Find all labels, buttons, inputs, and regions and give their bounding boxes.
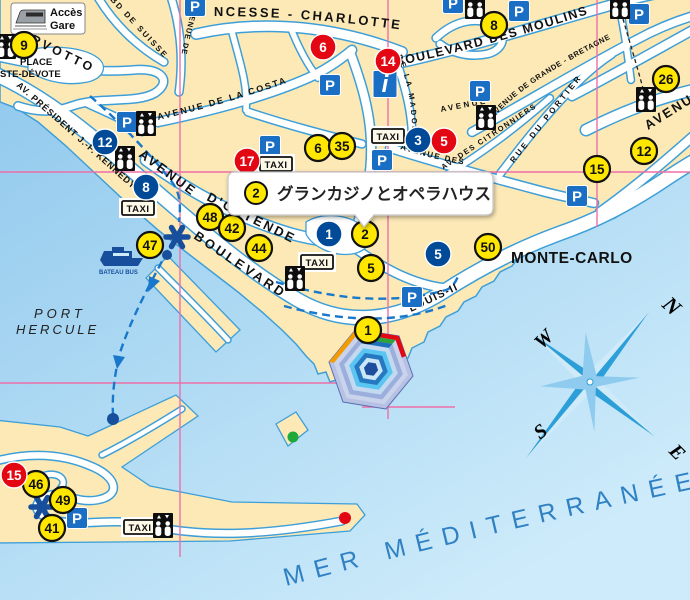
marker-yellow-42[interactable]: 42 — [219, 215, 245, 241]
marker-red-5[interactable]: 5 — [431, 128, 457, 154]
svg-text:P: P — [265, 139, 275, 156]
marker-yellow-49[interactable]: 49 — [50, 487, 76, 513]
svg-text:P: P — [325, 78, 335, 95]
svg-text:6: 6 — [319, 40, 327, 55]
taxi-sign[interactable]: TAXI — [121, 200, 156, 217]
marker-yellow-5[interactable]: 5 — [358, 255, 384, 281]
marker-yellow-26[interactable]: 26 — [653, 66, 679, 92]
elevator-icon[interactable] — [465, 0, 485, 19]
svg-text:15: 15 — [6, 468, 22, 483]
svg-text:49: 49 — [55, 493, 70, 508]
parking-icon[interactable]: P — [320, 75, 341, 96]
parking-icon[interactable]: P — [629, 4, 650, 25]
svg-text:TAXI: TAXI — [306, 258, 329, 269]
marker-yellow-15[interactable]: 15 — [584, 156, 610, 182]
svg-text:42: 42 — [224, 221, 239, 236]
map-canvas[interactable]: NCESSE - CHARLOTTE BOULEVARD DES MOULINS… — [0, 0, 690, 600]
svg-text:47: 47 — [142, 238, 157, 253]
marker-yellow-41[interactable]: 41 — [39, 515, 65, 541]
marker-yellow-1[interactable]: 1 — [355, 317, 381, 343]
svg-text:44: 44 — [251, 241, 267, 256]
acces-gare-box[interactable]: Accès Gare — [11, 3, 85, 34]
marker-yellow-44[interactable]: 44 — [246, 235, 272, 261]
marker-yellow-8[interactable]: 8 — [481, 12, 507, 38]
svg-text:46: 46 — [28, 477, 44, 492]
elevator-icon[interactable] — [115, 146, 135, 171]
svg-text:12: 12 — [97, 135, 112, 150]
city-label: MONTE-CARLO — [511, 250, 633, 267]
svg-text:8: 8 — [490, 18, 498, 33]
svg-text:2: 2 — [361, 227, 369, 242]
svg-text:TAXI: TAXI — [127, 204, 150, 215]
svg-text:26: 26 — [658, 72, 674, 87]
svg-text:35: 35 — [334, 139, 350, 154]
svg-text:5: 5 — [434, 247, 442, 262]
svg-text:TAXI: TAXI — [129, 523, 152, 534]
marker-blue-3[interactable]: 3 — [405, 127, 431, 153]
svg-text:2: 2 — [252, 186, 259, 201]
parking-icon[interactable]: P — [185, 0, 206, 17]
marker-red-15[interactable]: 15 — [1, 462, 27, 488]
marker-blue-8[interactable]: 8 — [133, 174, 159, 200]
taxi-sign[interactable]: TAXI — [259, 156, 294, 173]
svg-text:Accès: Accès — [50, 7, 82, 19]
parking-icon[interactable]: P — [372, 150, 393, 171]
marker-red-14[interactable]: 14 — [375, 48, 401, 74]
svg-text:TAXI: TAXI — [265, 160, 288, 171]
elevator-icon[interactable] — [636, 87, 656, 112]
svg-text:15: 15 — [589, 162, 605, 177]
svg-text:Gare: Gare — [50, 20, 75, 32]
info-icon[interactable]: i — [373, 71, 397, 99]
svg-text:41: 41 — [44, 521, 60, 536]
svg-text:STE-DÉVOTE: STE-DÉVOTE — [0, 69, 61, 80]
elevator-icon[interactable] — [285, 266, 305, 291]
svg-text:P: P — [122, 115, 132, 132]
svg-text:5: 5 — [440, 134, 448, 149]
marker-yellow-47[interactable]: 47 — [137, 232, 163, 258]
tooltip-text: グランカジノとオペラハウス — [277, 184, 491, 204]
parking-icon[interactable]: P — [567, 186, 588, 207]
parking-icon[interactable]: P — [402, 287, 423, 308]
marker-yellow-6[interactable]: 6 — [305, 135, 331, 161]
port-label: PORT — [34, 306, 86, 321]
svg-text:P: P — [475, 84, 485, 101]
svg-text:17: 17 — [239, 154, 254, 169]
svg-text:6: 6 — [314, 141, 322, 156]
svg-text:P: P — [634, 7, 644, 24]
svg-text:8: 8 — [142, 180, 150, 195]
svg-text:HERCULE: HERCULE — [16, 322, 99, 337]
map-dot — [162, 250, 172, 260]
svg-text:14: 14 — [380, 54, 396, 69]
parking-icon[interactable]: P — [470, 81, 491, 102]
elevator-icon[interactable] — [153, 513, 173, 538]
monaco-map: NCESSE - CHARLOTTE BOULEVARD DES MOULINS… — [0, 0, 690, 600]
map-dot — [288, 432, 299, 443]
svg-text:1: 1 — [325, 227, 333, 242]
map-dot — [107, 413, 119, 425]
svg-text:P: P — [448, 0, 458, 13]
marker-yellow-50[interactable]: 50 — [475, 234, 501, 260]
svg-text:1: 1 — [364, 323, 372, 338]
marker-blue-1[interactable]: 1 — [316, 221, 342, 247]
map-dot — [339, 512, 351, 524]
marker-blue-12[interactable]: 12 — [92, 129, 118, 155]
svg-text:P: P — [514, 4, 524, 21]
svg-text:12: 12 — [636, 144, 651, 159]
marker-yellow-35[interactable]: 35 — [329, 133, 355, 159]
elevator-icon[interactable] — [610, 0, 630, 19]
svg-text:TAXI: TAXI — [377, 132, 400, 143]
parking-icon[interactable]: P — [443, 0, 464, 14]
parking-icon[interactable]: P — [117, 112, 138, 133]
taxi-sign[interactable]: TAXI — [371, 128, 406, 145]
marker-yellow-12[interactable]: 12 — [631, 138, 657, 164]
svg-text:P: P — [377, 153, 387, 170]
svg-text:BATEAU BUS: BATEAU BUS — [99, 270, 138, 276]
elevator-icon[interactable] — [136, 111, 156, 136]
marker-yellow-9[interactable]: 9 — [11, 32, 37, 58]
marker-red-6[interactable]: 6 — [310, 34, 336, 60]
svg-text:3: 3 — [414, 133, 422, 148]
parking-icon[interactable]: P — [509, 1, 530, 22]
svg-text:50: 50 — [480, 240, 495, 255]
elevator-icon[interactable] — [476, 105, 496, 130]
svg-text:P: P — [572, 189, 582, 206]
svg-text:P: P — [407, 290, 417, 307]
taxi-sign[interactable]: TAXI — [123, 519, 158, 536]
parking-icon[interactable]: P — [260, 136, 281, 157]
svg-text:9: 9 — [20, 38, 28, 53]
svg-text:5: 5 — [367, 261, 375, 276]
svg-text:48: 48 — [202, 210, 218, 225]
marker-red-17[interactable]: 17 — [234, 148, 260, 174]
marker-blue-5[interactable]: 5 — [425, 241, 451, 267]
svg-text:P: P — [190, 0, 200, 16]
svg-text:P: P — [72, 511, 82, 528]
